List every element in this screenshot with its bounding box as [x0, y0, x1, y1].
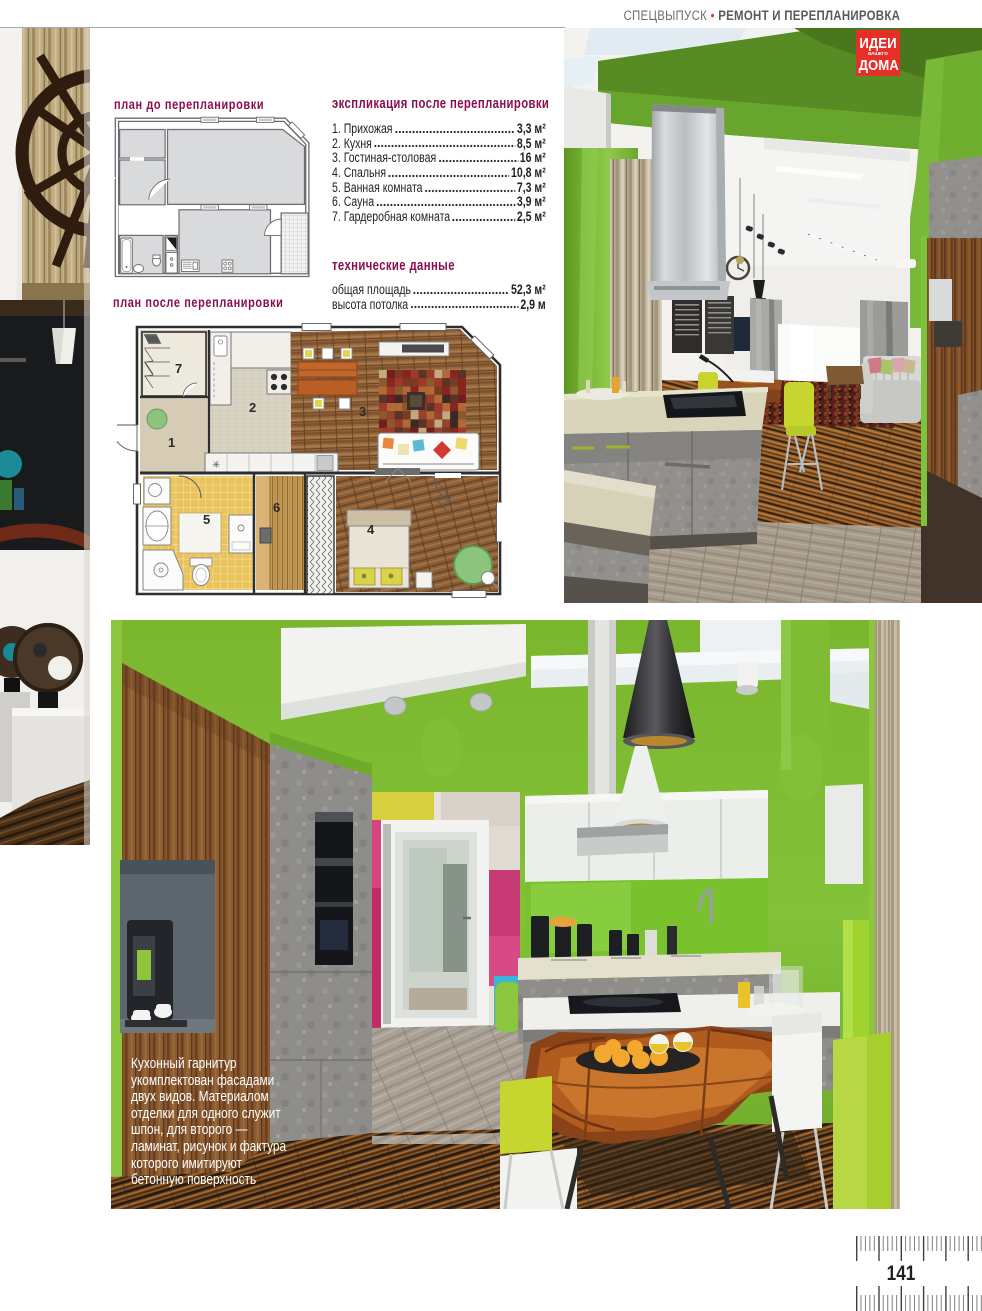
svg-text:✳: ✳ [212, 460, 220, 471]
svg-text:5: 5 [203, 512, 210, 527]
svg-text:7: 7 [175, 361, 182, 376]
svg-text:1: 1 [168, 435, 175, 450]
svg-text:6: 6 [273, 500, 280, 515]
svg-text:2: 2 [249, 400, 256, 415]
svg-text:3: 3 [359, 404, 366, 419]
svg-text:4: 4 [367, 522, 375, 537]
